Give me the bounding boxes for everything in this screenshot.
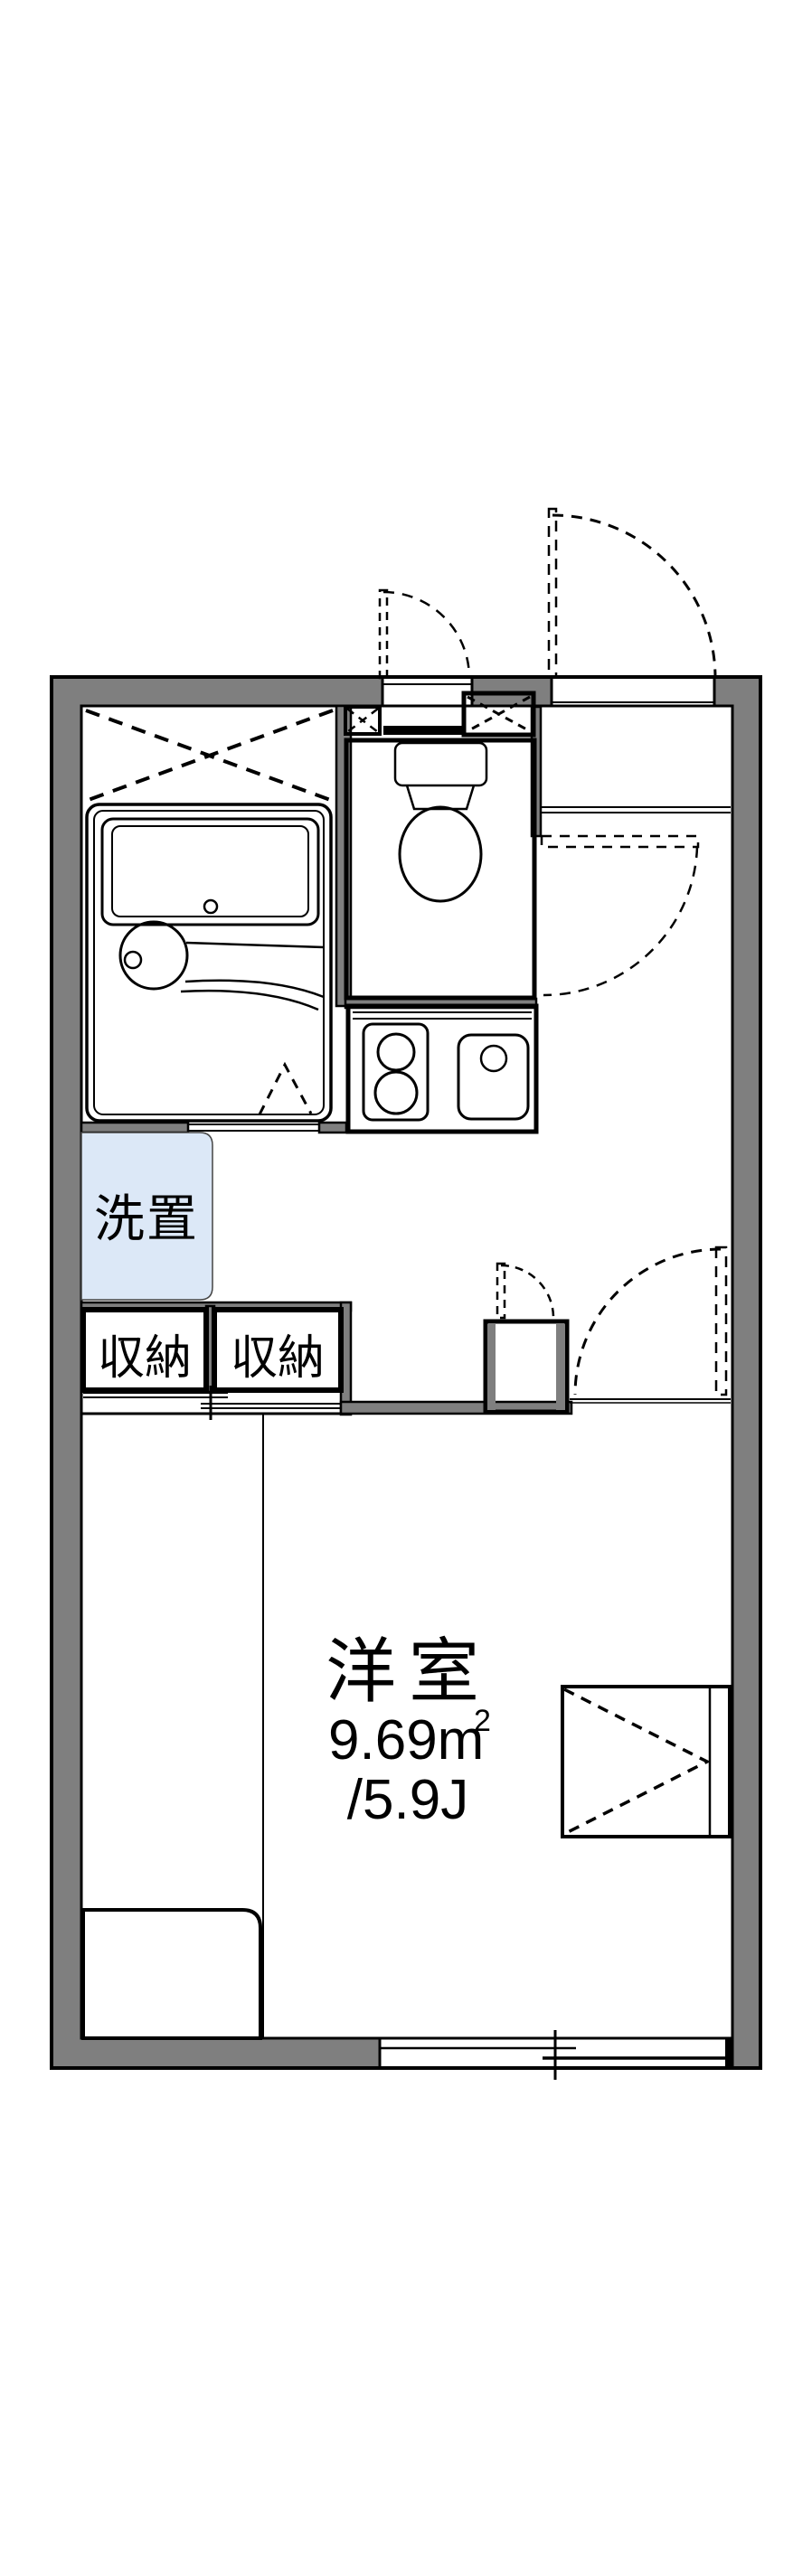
floor-plan-drawing: 洗置 収納 収納 洋室 9.69m 2 /5	[0, 0, 812, 2576]
bath-counter-edge	[186, 943, 324, 947]
toilet-floor	[346, 740, 534, 998]
hall-cabinet	[486, 1264, 567, 1412]
entrance-door	[549, 509, 715, 678]
toilet-room	[346, 740, 534, 998]
bathtub-drain	[204, 900, 217, 913]
main-room: 洋室 9.69m 2 /5.9J	[83, 1414, 730, 2038]
bath-counter-curve-top	[185, 981, 324, 997]
ceiling-access-x-marker	[86, 710, 333, 801]
room-name-label: 洋室	[326, 1631, 492, 1711]
stove-burner-large	[375, 1072, 417, 1114]
room-door-swing	[575, 1249, 721, 1395]
stove-burner-small	[378, 1034, 414, 1070]
washer-place: 洗置	[81, 1133, 212, 1300]
bathtub	[102, 819, 318, 925]
bath-sink-faucet	[125, 952, 141, 968]
window-end-stop	[725, 2038, 732, 2068]
bathroom-toilet-wall	[336, 706, 351, 1006]
bath-unit-shell-inner	[94, 811, 324, 1114]
floor-plan-page: 洗置 収納 収納 洋室 9.69m 2 /5	[0, 0, 812, 2576]
bath-unit-shell	[87, 804, 331, 1121]
bathtub-rim	[112, 826, 308, 917]
cabinet-side-right	[556, 1324, 565, 1410]
service-door-swing	[383, 592, 469, 678]
room-area-superscript: 2	[474, 1704, 491, 1738]
room-entry-door	[570, 1247, 731, 1403]
bath-counter-curve-bottom	[181, 991, 318, 1010]
bath-folding-door[interactable]	[260, 1065, 311, 1114]
washer-label: 洗置	[94, 1190, 199, 1247]
toilet-bowl	[400, 807, 481, 901]
hall-door-swing	[543, 847, 697, 995]
kitchen	[348, 1006, 536, 1132]
entrance-door-swing	[552, 515, 715, 678]
bathroom-bottom-wall-left	[81, 1123, 188, 1133]
cabinet-side-left	[487, 1324, 496, 1410]
cabinet-door-leaf[interactable]	[497, 1264, 505, 1318]
bed	[83, 1910, 260, 2038]
cabinet-top-gap	[496, 1329, 556, 1333]
side-window-bay	[562, 1687, 730, 1837]
room-door-leaf[interactable]	[716, 1247, 726, 1395]
room-area-tatami: /5.9J	[347, 1769, 468, 1831]
toilet-seat-neck	[407, 785, 474, 809]
hall-door-leaf[interactable]	[542, 836, 698, 847]
toilet-back-wall	[383, 726, 462, 735]
bathroom-bottom-wall-right	[319, 1123, 346, 1133]
bath-sink-basin	[120, 922, 187, 989]
entrance-door-leaf[interactable]	[549, 509, 556, 677]
window-opening-direction	[564, 1689, 707, 1834]
service-door	[380, 590, 469, 678]
sink-drain	[481, 1046, 506, 1071]
storage-right-label: 収納	[231, 1332, 325, 1385]
bathroom	[86, 710, 333, 1121]
room-area-value: 9.69m	[328, 1709, 484, 1772]
cabinet-box	[486, 1321, 567, 1412]
toilet-tank	[395, 743, 486, 785]
entrance-hall	[541, 807, 731, 995]
service-door-leaf[interactable]	[380, 590, 387, 678]
storage-left-label: 収納	[98, 1332, 192, 1385]
kitchen-sink	[458, 1035, 528, 1119]
cabinet-door-swing	[501, 1265, 553, 1318]
